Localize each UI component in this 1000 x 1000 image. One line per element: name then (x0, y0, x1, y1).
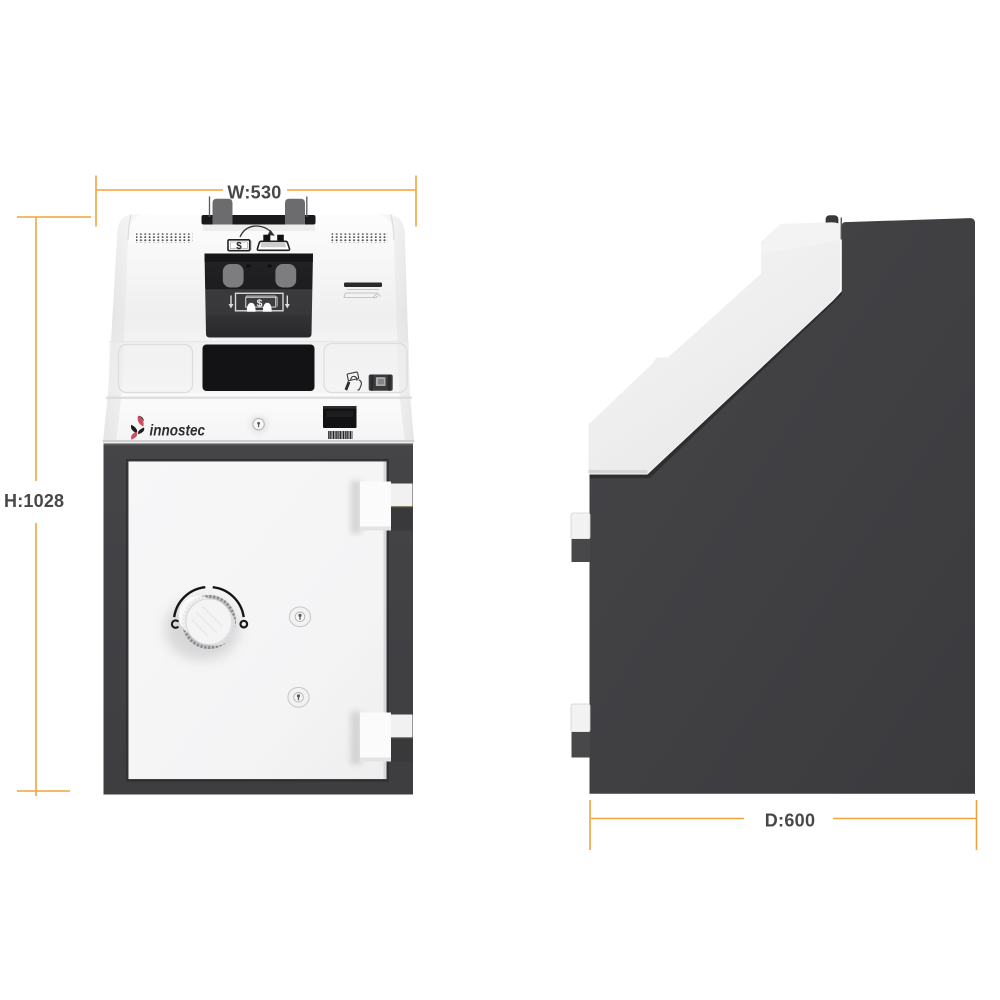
svg-text:innostec: innostec (150, 423, 206, 440)
svg-text:$: $ (257, 297, 263, 309)
svg-text:H:1028: H:1028 (4, 491, 64, 511)
svg-text:D:600: D:600 (765, 810, 816, 830)
svg-text:W:530: W:530 (227, 183, 281, 203)
svg-text:$: $ (236, 241, 242, 252)
